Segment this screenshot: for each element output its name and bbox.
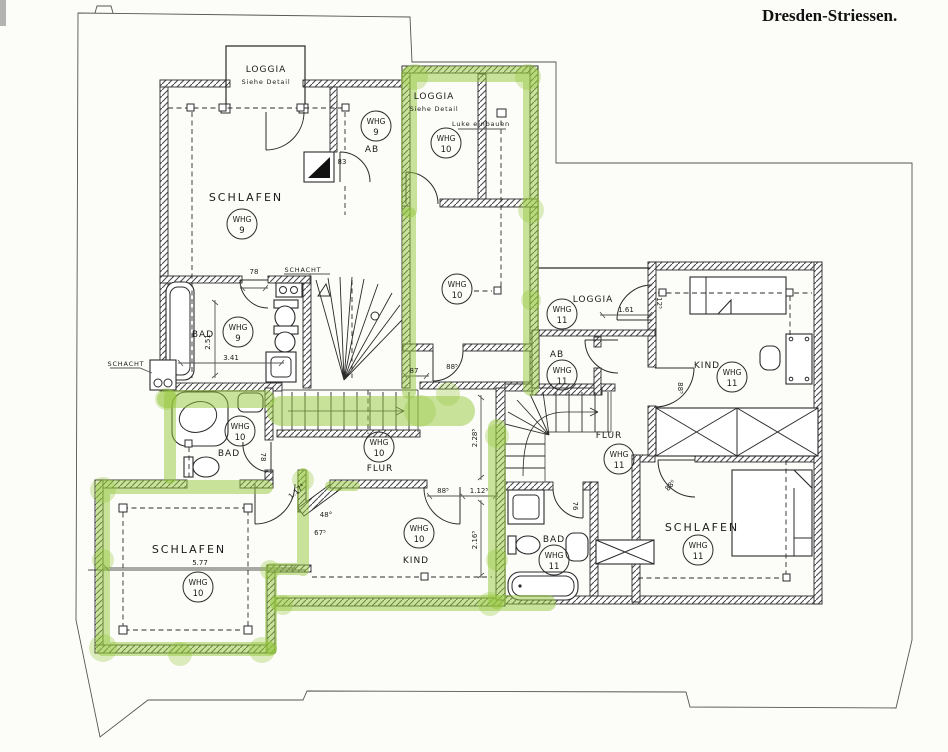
svg-text:WHG: WHG	[553, 305, 572, 314]
dim-angle-b: 67⁵	[314, 529, 326, 537]
room-label-schlafen11: SCHLAFEN	[665, 521, 739, 534]
room-label-loggia10: LOGGIA	[414, 92, 455, 102]
svg-text:WHG: WHG	[545, 551, 564, 560]
svg-text:10: 10	[441, 145, 452, 155]
svg-text:11: 11	[614, 461, 625, 471]
floor-plan-drawing: Dresden-Striessen. LOGGIA Siehe Detail S…	[0, 0, 948, 752]
annotation-schacht-left: SCHACHT	[108, 360, 145, 368]
svg-text:11: 11	[557, 377, 568, 387]
dim-flur-height: 2.28⁵	[471, 429, 479, 448]
room-label-flur11: FLUR	[596, 431, 623, 441]
room-label-bad10: BAD	[218, 449, 240, 459]
room-label-flur10: FLUR	[367, 464, 394, 474]
svg-text:WHG: WHG	[189, 578, 208, 587]
room-label-loggia11: LOGGIA	[573, 295, 614, 305]
room-label-kind10: KIND	[403, 556, 429, 566]
svg-text:9: 9	[235, 334, 240, 344]
dim-flur-door: 88⁵	[437, 487, 449, 495]
room-label-kind11: KIND	[694, 361, 720, 371]
dim-kind11-lower-door: 88⁵	[676, 382, 684, 394]
svg-text:11: 11	[693, 552, 704, 562]
dim-flur-pass: 1.12⁵	[470, 487, 489, 495]
dim-angle-a: 48°	[320, 511, 332, 519]
annotation-luke-einbauen: Luke einbauen	[452, 120, 510, 128]
dim-bad9-door: 78	[250, 268, 259, 276]
room-label-ab9: AB	[365, 145, 379, 155]
dim-bad9-height: 2.51	[204, 334, 212, 350]
dim-ab9-door: 83	[338, 158, 347, 166]
svg-text:10: 10	[452, 291, 463, 301]
room-label-loggia9: LOGGIA	[246, 65, 287, 75]
svg-text:WHG: WHG	[370, 438, 389, 447]
room-label-schlafen9: SCHLAFEN	[209, 191, 283, 204]
scanned-floor-plan-page: Dresden-Striessen. LOGGIA Siehe Detail S…	[0, 0, 948, 752]
room-label-schlafen10: SCHLAFEN	[152, 543, 226, 556]
room-sublabel-loggia10: Siehe Detail	[410, 105, 459, 113]
svg-text:WHG: WHG	[233, 215, 252, 224]
svg-text:WHG: WHG	[448, 280, 467, 289]
svg-text:WHG: WHG	[723, 368, 742, 377]
room-sublabel-loggia9: Siehe Detail	[242, 78, 291, 86]
room-label-bad11: BAD	[543, 535, 565, 545]
dim-bad9-width: 3.41	[223, 354, 239, 362]
svg-text:WHG: WHG	[437, 134, 456, 143]
svg-text:10: 10	[193, 589, 204, 599]
room-label-ab11: AB	[550, 350, 564, 360]
dim-kind10-height: 2.16⁵	[471, 531, 479, 550]
svg-text:WHG: WHG	[553, 366, 572, 375]
dim-bad11-door: 76	[571, 502, 579, 511]
svg-text:11: 11	[727, 379, 738, 389]
svg-text:WHG: WHG	[231, 422, 250, 431]
svg-text:10: 10	[414, 535, 425, 545]
page-title: Dresden-Striessen.	[762, 6, 897, 25]
svg-text:WHG: WHG	[410, 524, 429, 533]
dim-schlafen10-width: 5.77	[192, 559, 208, 567]
svg-text:10: 10	[374, 449, 385, 459]
svg-text:9: 9	[373, 128, 378, 138]
dim-corridor-door: 88⁵	[446, 363, 458, 371]
svg-text:9: 9	[239, 226, 244, 236]
svg-text:10: 10	[235, 433, 246, 443]
dim-corridor-len: 87	[410, 367, 419, 375]
svg-text:11: 11	[549, 562, 560, 572]
fixtures-schlafen11	[732, 470, 812, 556]
svg-text:WHG: WHG	[229, 323, 248, 332]
dim-loggia11-door: 1.61	[618, 306, 634, 314]
dim-kind11-door: 12⁵	[655, 297, 663, 309]
scan-smudge	[0, 0, 6, 26]
annotation-schacht-top: SCHACHT	[285, 266, 322, 274]
svg-text:WHG: WHG	[689, 541, 708, 550]
svg-text:11: 11	[557, 316, 568, 326]
dim-bad10-door: 78	[259, 453, 267, 462]
svg-text:WHG: WHG	[367, 117, 386, 126]
svg-text:WHG: WHG	[610, 450, 629, 459]
